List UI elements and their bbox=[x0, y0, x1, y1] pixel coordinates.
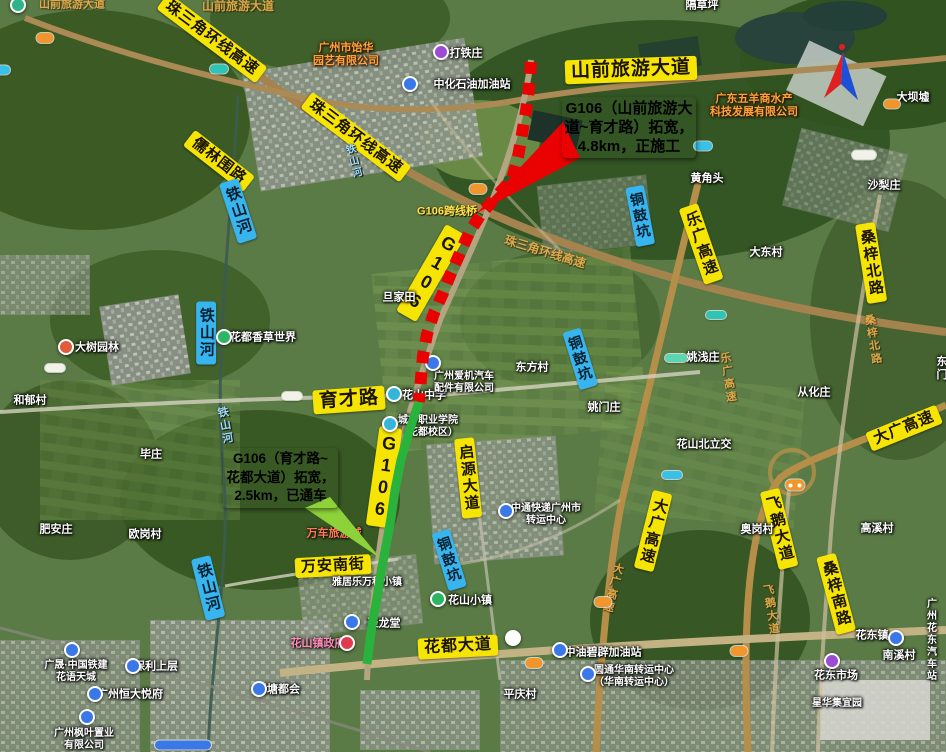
compass-north-icon bbox=[812, 40, 864, 106]
opened-callout-line3: 2.5km，已通车 bbox=[224, 487, 337, 506]
construction-callout-line1: G106（山前旅游大 bbox=[563, 99, 695, 118]
opened-callout-line2: 花都大道）拓宽， bbox=[224, 469, 337, 488]
construction-callout-line2: 道~育才路）拓宽， bbox=[563, 118, 695, 137]
opened-callout-line1: G106（育才路~ bbox=[224, 450, 337, 469]
construction-callout: G106（山前旅游大 道~育才路）拓宽， 4.8km，正施工 bbox=[562, 97, 696, 158]
opened-callout: G106（育才路~ 花都大道）拓宽， 2.5km，已通车 bbox=[223, 448, 338, 508]
construction-section-line bbox=[419, 62, 531, 402]
opened-section-line bbox=[367, 402, 419, 664]
satellite-map[interactable]: 山前旅游大道珠三角环线高速珠三角环线高速儒林围路铁山河铁山河铁山河铜鼓坑铜鼓坑铜… bbox=[0, 0, 946, 752]
construction-callout-line3: 4.8km，正施工 bbox=[563, 137, 695, 156]
route-annotation-layer bbox=[0, 0, 946, 752]
